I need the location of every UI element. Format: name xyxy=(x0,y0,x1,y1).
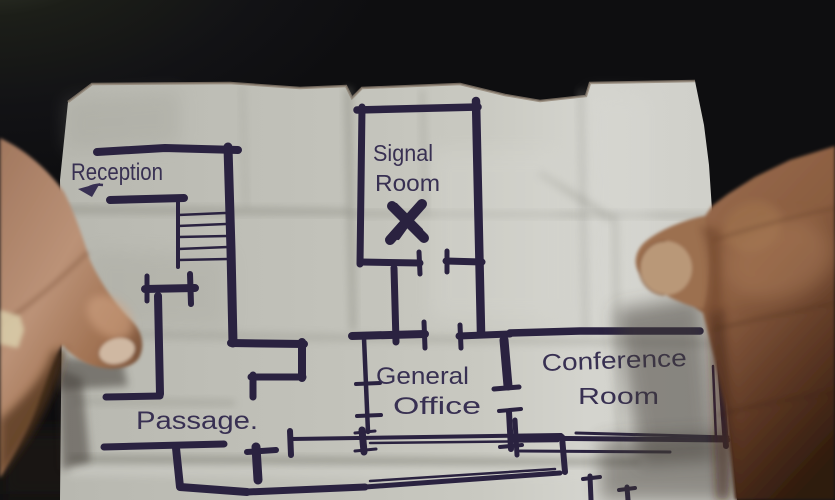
svg-text:Reception: Reception xyxy=(71,159,163,186)
svg-text:Passage.: Passage. xyxy=(136,407,258,435)
svg-text:Room: Room xyxy=(375,170,440,196)
svg-text:Signal: Signal xyxy=(373,140,433,166)
svg-text:Office: Office xyxy=(393,393,481,420)
svg-text:General: General xyxy=(376,363,469,390)
